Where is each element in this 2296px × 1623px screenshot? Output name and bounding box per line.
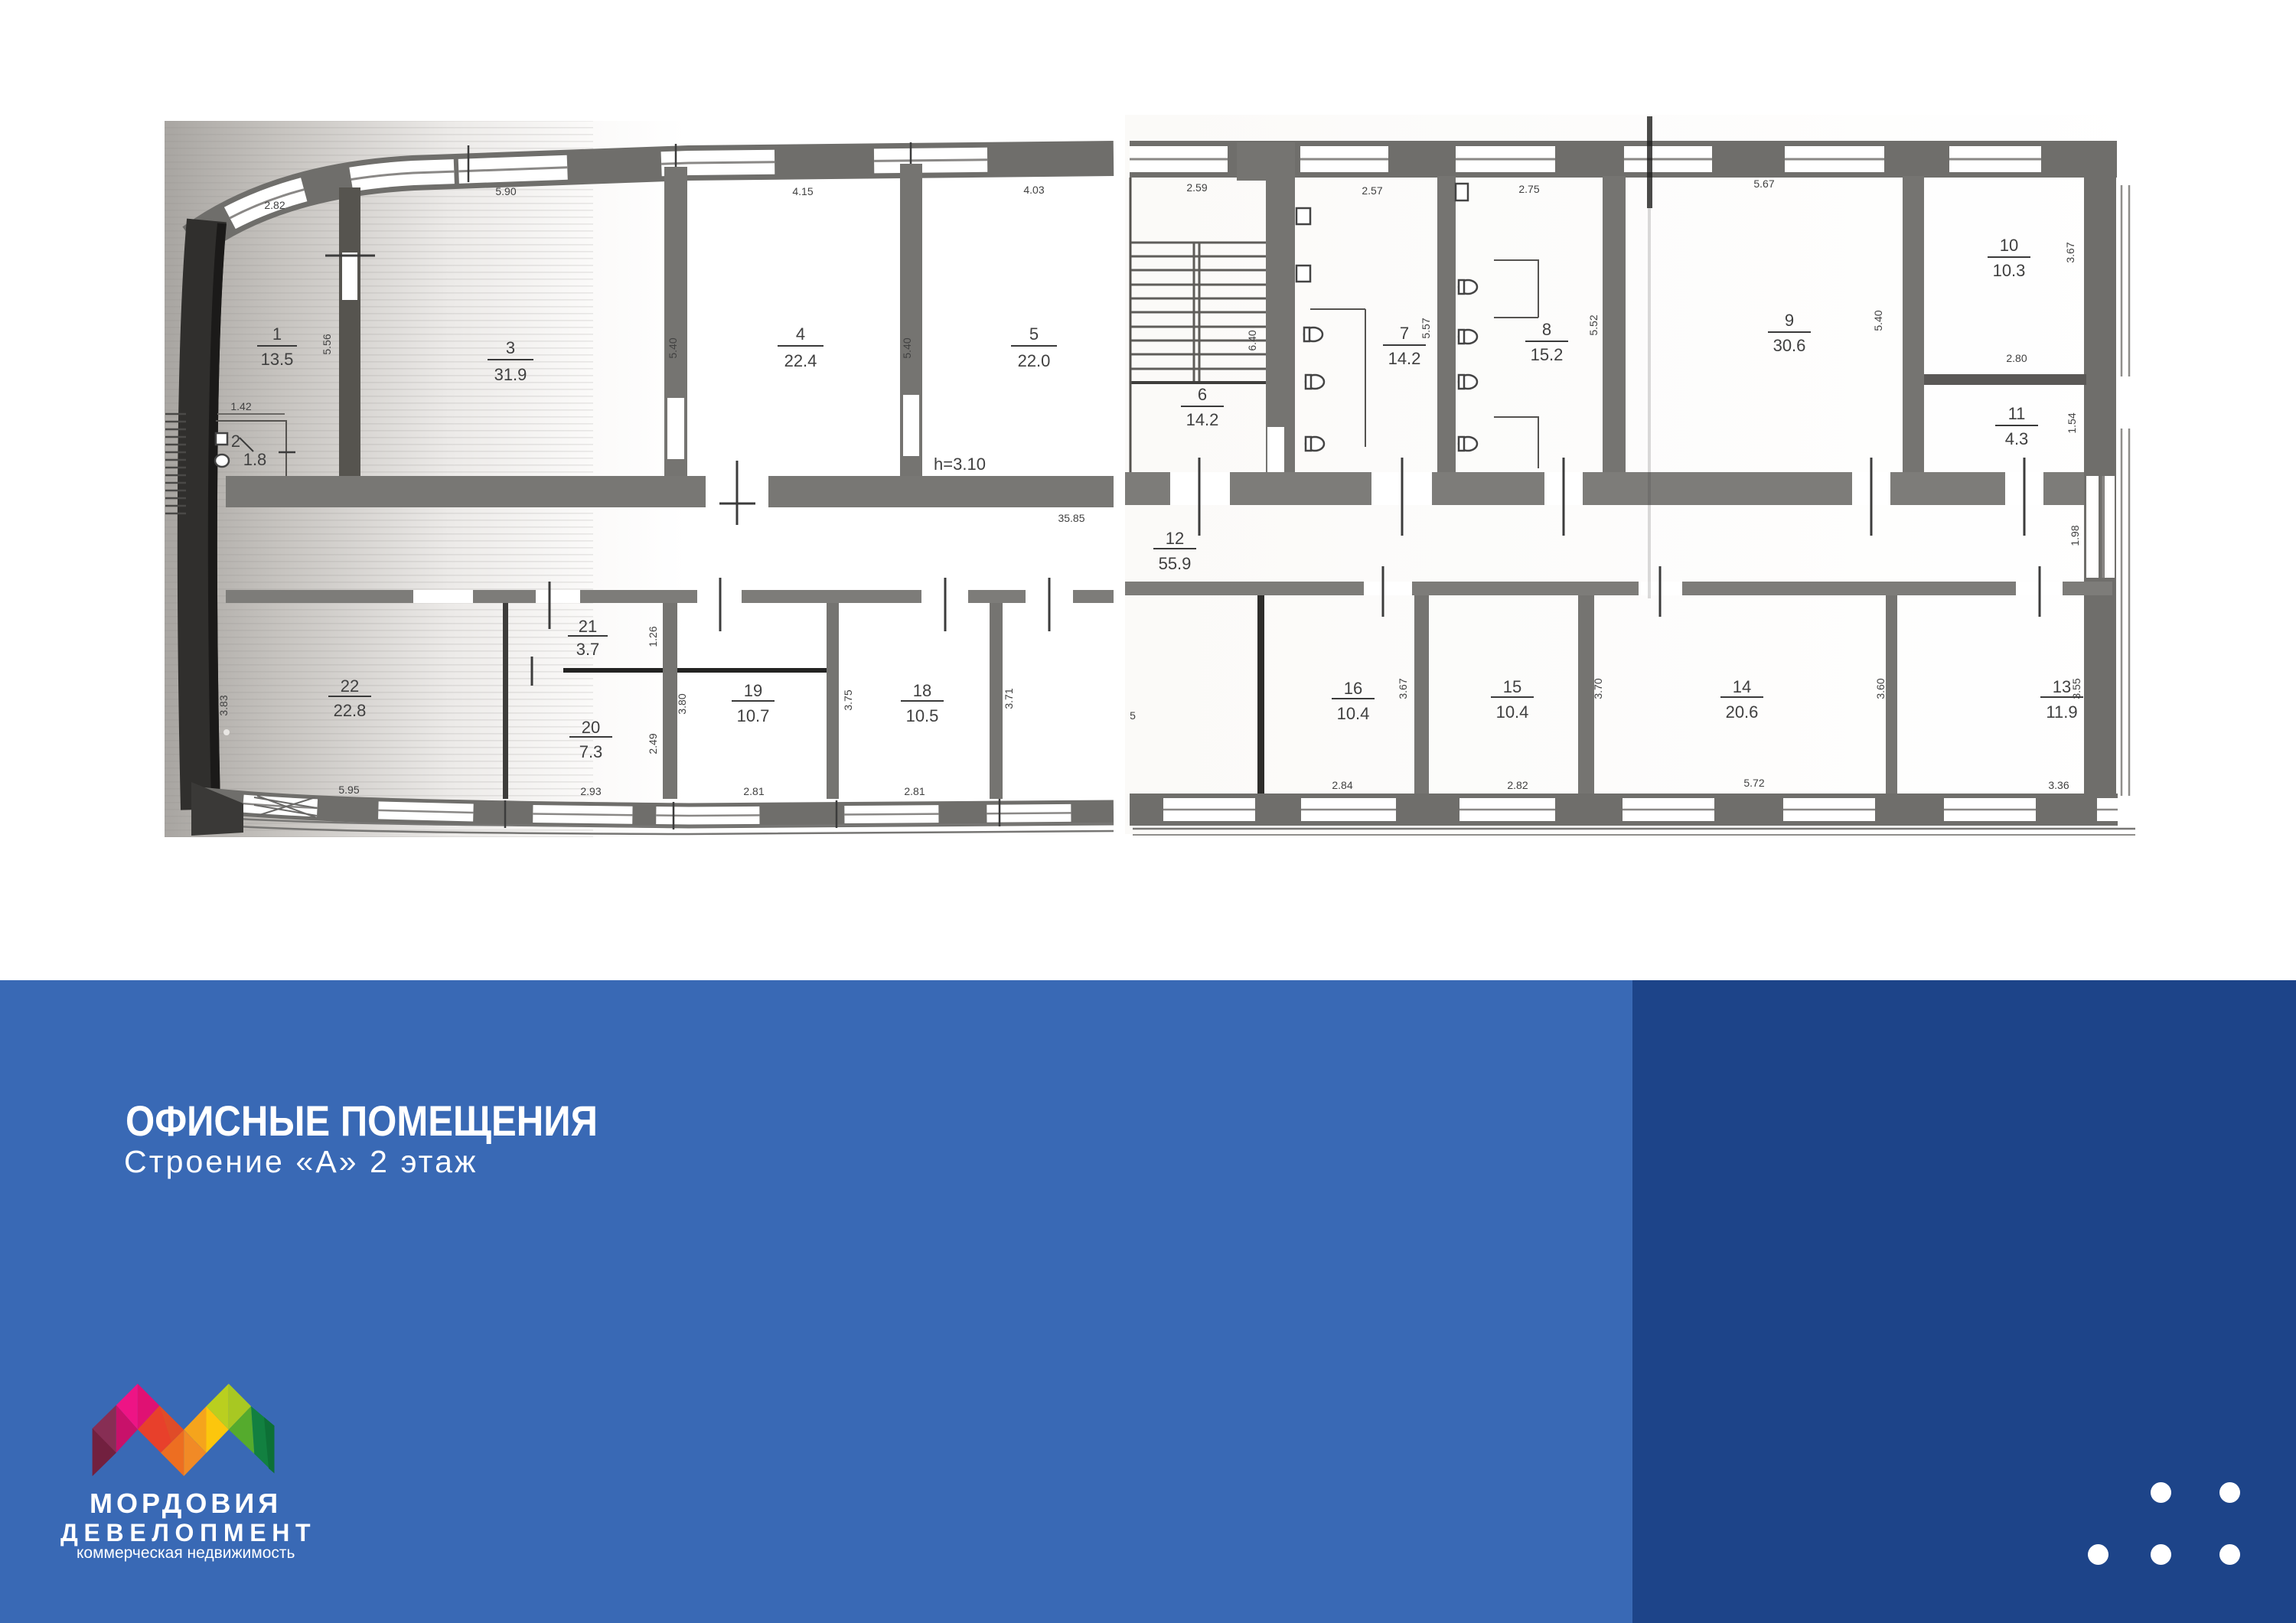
- svg-text:5.67: 5.67: [1753, 178, 1774, 190]
- svg-text:2.57: 2.57: [1362, 184, 1382, 197]
- svg-text:3.83: 3.83: [217, 695, 230, 715]
- svg-text:10.7: 10.7: [737, 706, 770, 725]
- svg-text:2.49: 2.49: [647, 733, 659, 754]
- svg-text:2.80: 2.80: [2006, 352, 2027, 364]
- svg-text:2.81: 2.81: [743, 785, 764, 797]
- svg-text:13: 13: [2053, 677, 2071, 696]
- svg-text:4: 4: [796, 324, 805, 344]
- svg-text:6: 6: [1198, 385, 1207, 404]
- svg-text:4.3: 4.3: [2005, 429, 2029, 448]
- svg-text:14.2: 14.2: [1388, 349, 1421, 368]
- svg-text:10.4: 10.4: [1337, 704, 1370, 723]
- svg-text:5: 5: [1029, 324, 1039, 344]
- svg-text:55.9: 55.9: [1159, 554, 1192, 573]
- svg-text:5.57: 5.57: [1420, 318, 1432, 338]
- svg-text:2.93: 2.93: [580, 785, 601, 797]
- svg-text:13.5: 13.5: [261, 350, 294, 369]
- svg-text:1.42: 1.42: [230, 400, 251, 412]
- svg-text:5.40: 5.40: [667, 337, 679, 358]
- svg-text:3.60: 3.60: [1874, 678, 1887, 699]
- svg-text:3.67: 3.67: [2064, 242, 2076, 262]
- svg-text:11.9: 11.9: [2046, 702, 2077, 722]
- svg-text:4.15: 4.15: [792, 185, 813, 197]
- svg-text:22: 22: [341, 676, 359, 696]
- svg-text:19: 19: [744, 681, 762, 700]
- svg-text:5.56: 5.56: [321, 334, 333, 354]
- svg-text:10.3: 10.3: [1993, 261, 2026, 280]
- svg-text:3.75: 3.75: [842, 689, 854, 710]
- svg-text:14: 14: [1733, 677, 1751, 696]
- svg-text:h=3.10: h=3.10: [934, 455, 986, 474]
- svg-text:5.95: 5.95: [338, 784, 359, 796]
- svg-text:35.85: 35.85: [1058, 512, 1084, 524]
- svg-text:1.26: 1.26: [647, 626, 659, 647]
- svg-text:22.4: 22.4: [784, 351, 817, 370]
- svg-text:2.82: 2.82: [1507, 779, 1528, 791]
- svg-text:2.75: 2.75: [1518, 183, 1539, 195]
- svg-text:22.0: 22.0: [1018, 351, 1051, 370]
- svg-text:31.9: 31.9: [494, 365, 527, 384]
- svg-text:5.52: 5.52: [1587, 314, 1600, 335]
- svg-text:5.72: 5.72: [1743, 777, 1764, 789]
- svg-text:30.6: 30.6: [1773, 336, 1806, 355]
- svg-text:5.40: 5.40: [901, 337, 913, 358]
- svg-text:22.8: 22.8: [334, 701, 367, 720]
- svg-text:10.4: 10.4: [1496, 702, 1529, 722]
- svg-text:3: 3: [506, 338, 515, 357]
- svg-text:5: 5: [1130, 709, 1136, 722]
- svg-text:7: 7: [1400, 324, 1409, 343]
- svg-text:2.81: 2.81: [904, 785, 925, 797]
- svg-text:10: 10: [2000, 236, 2018, 255]
- svg-text:15.2: 15.2: [1531, 345, 1564, 364]
- svg-text:21: 21: [579, 617, 597, 636]
- svg-text:14.2: 14.2: [1186, 410, 1219, 429]
- svg-text:5.40: 5.40: [1872, 310, 1884, 331]
- svg-text:1.8: 1.8: [243, 450, 267, 469]
- svg-text:2.82: 2.82: [264, 199, 285, 211]
- svg-text:1: 1: [272, 324, 282, 344]
- svg-text:10.5: 10.5: [906, 706, 939, 725]
- svg-text:2: 2: [231, 432, 240, 451]
- svg-text:3.36: 3.36: [2048, 779, 2069, 791]
- svg-text:1.54: 1.54: [2066, 412, 2078, 433]
- svg-text:5.90: 5.90: [495, 185, 516, 197]
- svg-text:7.3: 7.3: [579, 742, 603, 761]
- svg-text:8: 8: [1542, 320, 1551, 339]
- svg-text:6.40: 6.40: [1246, 330, 1258, 350]
- svg-text:3.67: 3.67: [1397, 678, 1409, 699]
- svg-text:3.55: 3.55: [2070, 678, 2082, 699]
- svg-text:3.71: 3.71: [1003, 688, 1015, 709]
- svg-text:4.03: 4.03: [1023, 184, 1044, 196]
- svg-text:12: 12: [1166, 529, 1184, 548]
- svg-text:16: 16: [1344, 679, 1362, 698]
- svg-text:20.6: 20.6: [1726, 702, 1759, 722]
- svg-text:9: 9: [1785, 311, 1794, 330]
- svg-text:20: 20: [582, 718, 600, 737]
- svg-text:18: 18: [913, 681, 931, 700]
- svg-text:11: 11: [2008, 404, 2026, 423]
- svg-text:2.84: 2.84: [1332, 779, 1352, 791]
- svg-text:3.70: 3.70: [1592, 678, 1604, 699]
- svg-text:3.80: 3.80: [676, 693, 688, 714]
- svg-text:15: 15: [1503, 677, 1521, 696]
- svg-text:2.59: 2.59: [1186, 181, 1207, 194]
- svg-text:3.7: 3.7: [576, 640, 600, 659]
- svg-text:1.98: 1.98: [2069, 525, 2081, 546]
